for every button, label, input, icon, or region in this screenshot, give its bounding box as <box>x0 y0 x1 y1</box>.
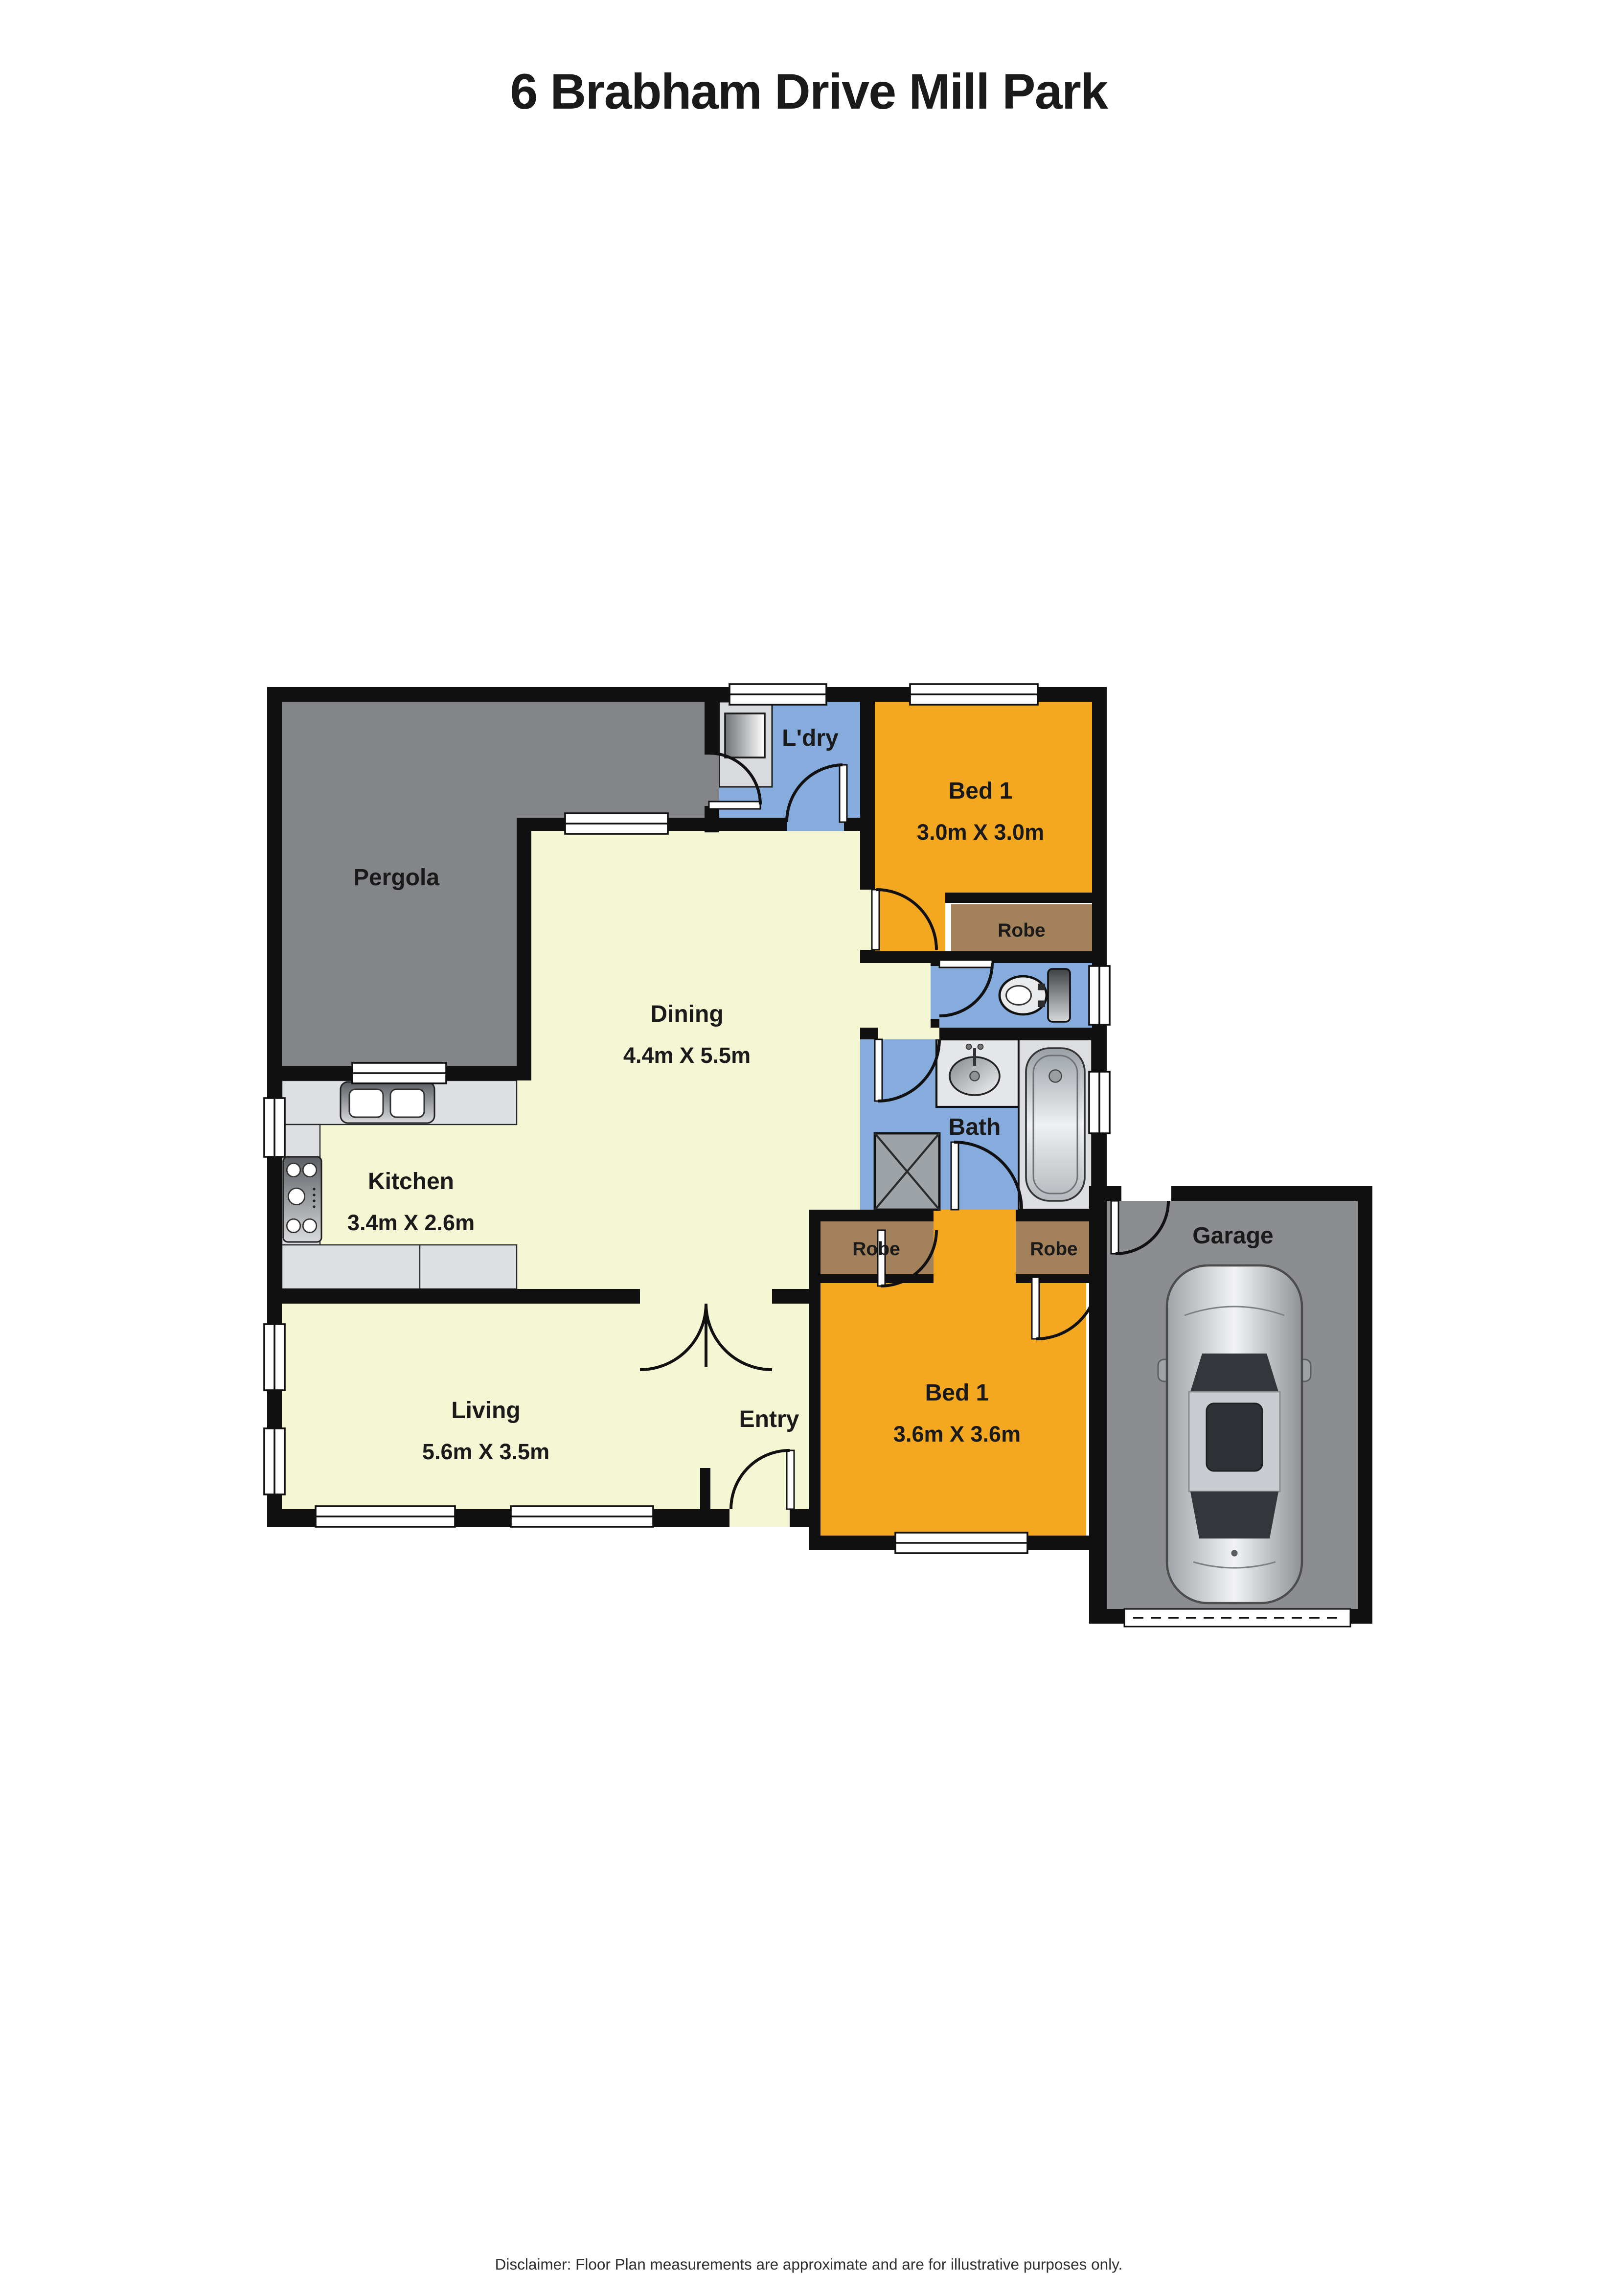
floor-plan-page: 6 Brabham Drive Mill Park Pergola L'dry … <box>0 0 1618 2289</box>
page-title: 6 Brabham Drive Mill Park <box>510 64 1108 119</box>
window <box>895 1533 1027 1553</box>
robe-label-bed2-right: Robe <box>1030 1239 1078 1260</box>
window <box>1089 1072 1110 1133</box>
room-label-kitchen: Kitchen <box>368 1169 454 1194</box>
room-dims-living: 5.6m X 3.5m <box>422 1439 549 1464</box>
window <box>729 684 826 705</box>
kitchen-counter-bottom <box>282 1245 517 1289</box>
room-dims-bed1: 3.0m X 3.0m <box>917 820 1044 845</box>
room-dims-bed2: 3.6m X 3.6m <box>893 1422 1021 1446</box>
room-label-bed1: Bed 1 <box>949 778 1013 804</box>
washing-machine-icon <box>719 702 772 787</box>
room-dims-dining: 4.4m X 5.5m <box>623 1043 751 1068</box>
room-label-living: Living <box>451 1398 520 1424</box>
room-label-laundry: L'dry <box>782 725 839 751</box>
window <box>565 813 668 834</box>
room-dims-kitchen: 3.4m X 2.6m <box>347 1210 475 1235</box>
window <box>316 1506 455 1527</box>
bathtub-icon <box>1019 1039 1092 1210</box>
window <box>1089 966 1110 1025</box>
kitchen-sink-icon <box>341 1082 434 1123</box>
window <box>264 1324 285 1390</box>
room-label-dining: Dining <box>650 1001 723 1027</box>
floor-plan-canvas: 6 Brabham Drive Mill Park Pergola L'dry … <box>0 0 1618 2289</box>
window <box>910 684 1038 705</box>
room-bed2-vestibule <box>934 1210 1016 1283</box>
shower-icon <box>875 1133 939 1210</box>
robe-label-bed2-left: Robe <box>852 1239 900 1260</box>
room-label-garage: Garage <box>1192 1223 1273 1249</box>
car-icon <box>1158 1265 1311 1603</box>
window <box>264 1428 285 1494</box>
disclaimer: Disclaimer: Floor Plan measurements are … <box>495 2255 1123 2273</box>
robe-label-bed1: Robe <box>998 920 1046 941</box>
window <box>511 1506 653 1527</box>
room-label-bath: Bath <box>949 1114 1001 1140</box>
room-label-pergola: Pergola <box>353 865 439 891</box>
bath-sink-icon <box>936 1039 1019 1107</box>
room-label-entry: Entry <box>739 1406 799 1432</box>
window <box>352 1063 446 1083</box>
window <box>264 1098 285 1157</box>
room-label-bed2: Bed 1 <box>925 1380 989 1406</box>
cooktop-icon <box>283 1157 321 1242</box>
room-bed2 <box>820 1283 1086 1536</box>
